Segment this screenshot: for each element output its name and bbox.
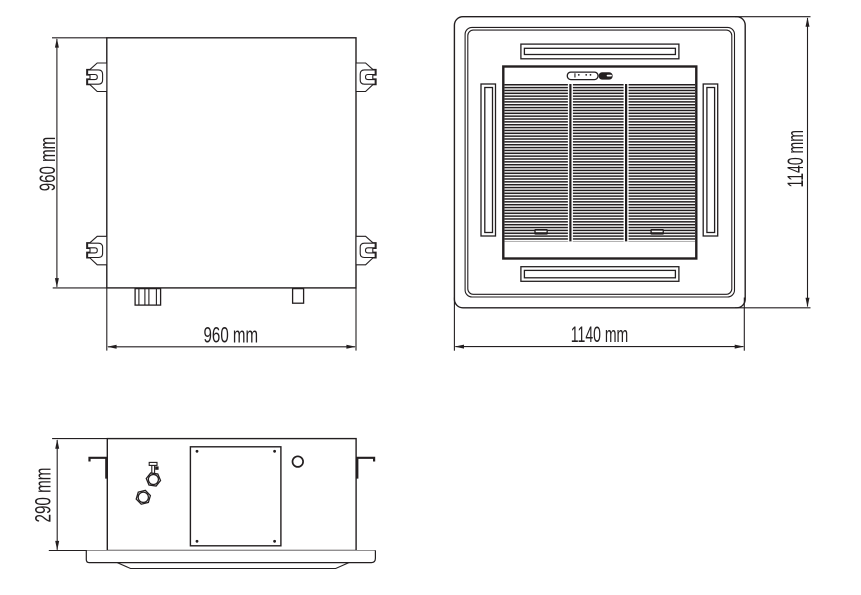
svg-text:960 mm: 960 mm [204, 323, 259, 348]
svg-text:1140 mm: 1140 mm [783, 130, 808, 188]
svg-text:290 mm: 290 mm [31, 468, 56, 523]
svg-text:960 mm: 960 mm [35, 137, 60, 192]
svg-text:1140 mm: 1140 mm [571, 322, 629, 347]
